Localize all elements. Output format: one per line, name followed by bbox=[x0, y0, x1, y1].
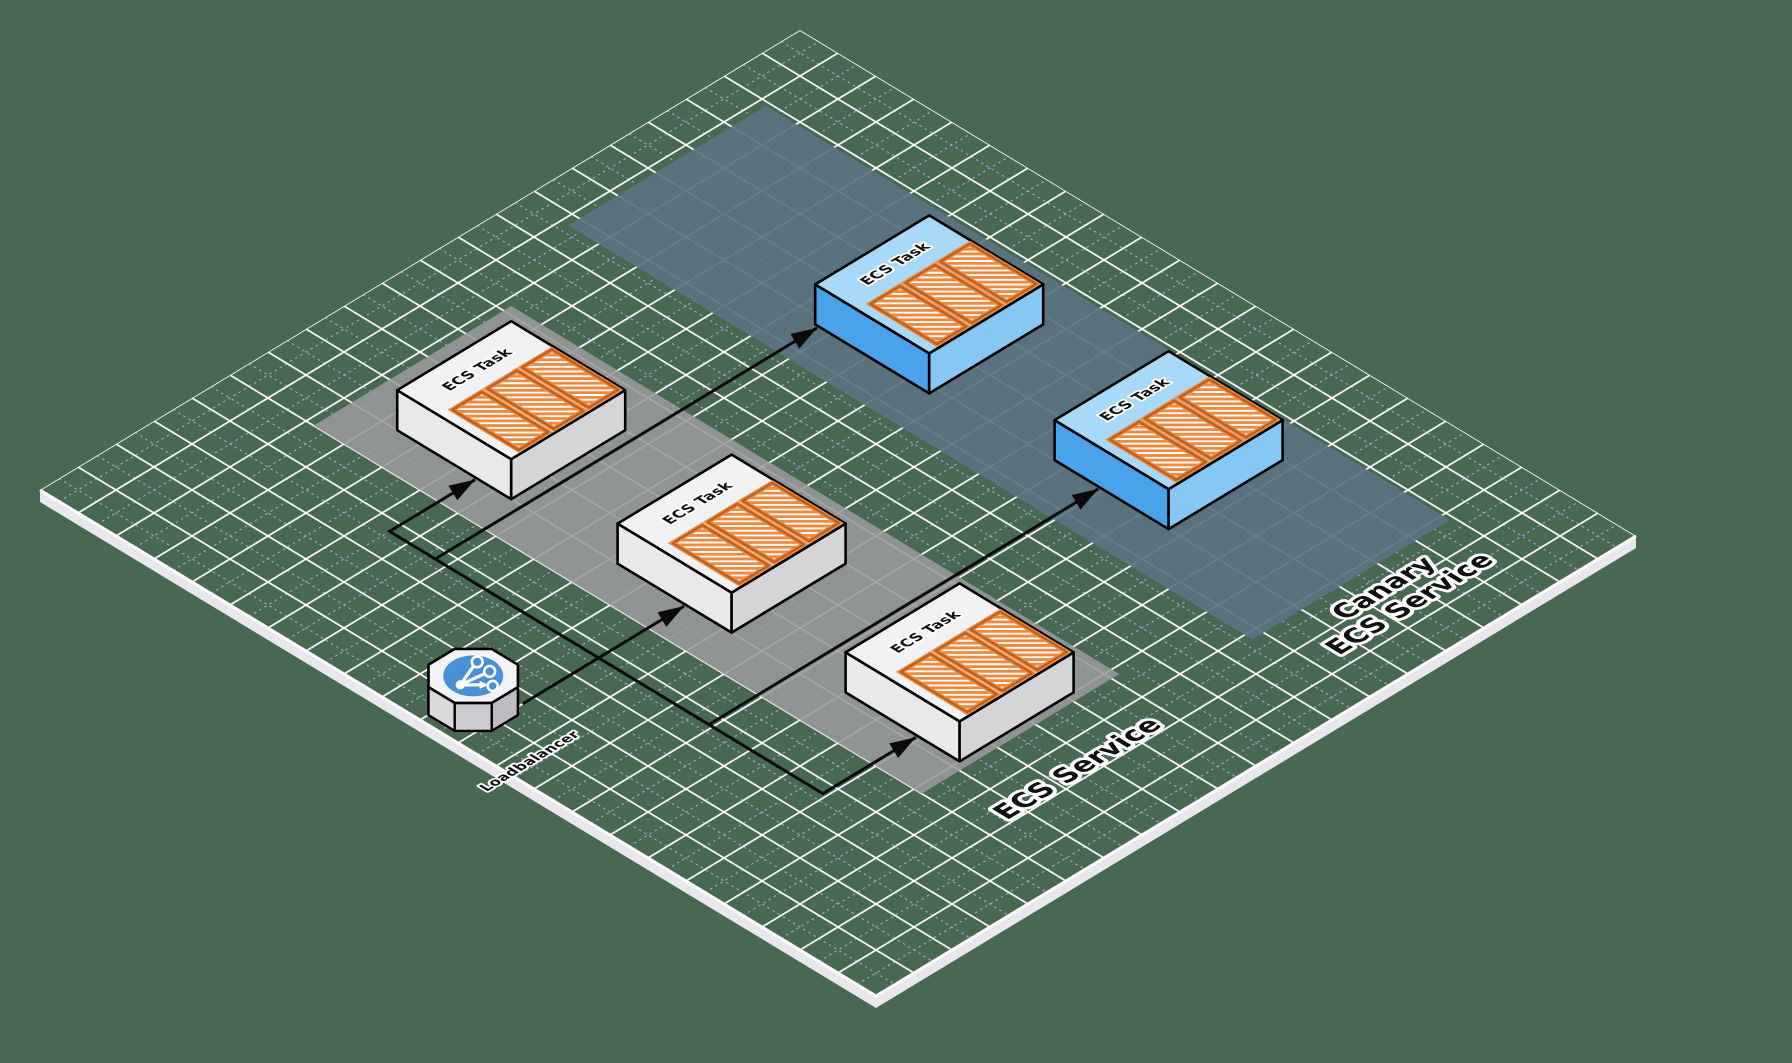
loadbalancer-side bbox=[455, 703, 492, 731]
isometric-diagram: ECS ServiceCanaryECS ServiceECS TaskECS … bbox=[0, 0, 1792, 1063]
isometric-diagram-stage: ECS ServiceCanaryECS ServiceECS TaskECS … bbox=[0, 0, 1792, 1063]
background bbox=[0, 0, 1792, 1063]
